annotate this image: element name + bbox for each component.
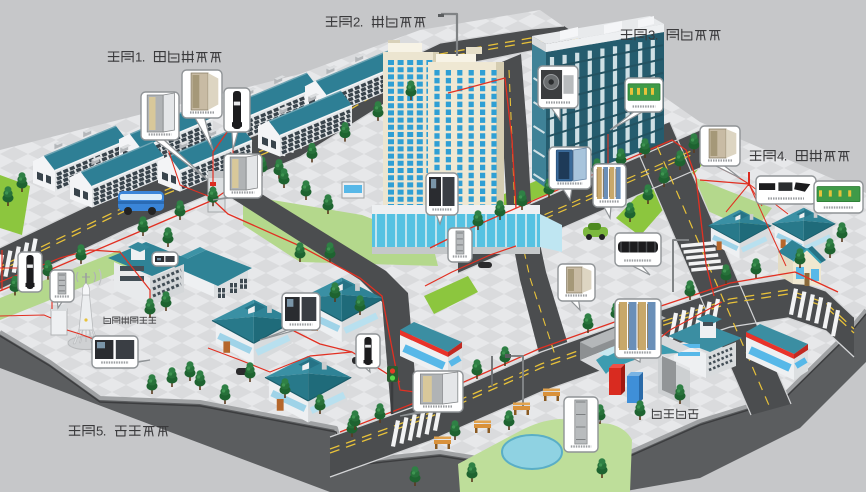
- svg-text:.: .: [103, 423, 107, 438]
- svg-text:.: .: [655, 27, 659, 42]
- svg-text:.: .: [360, 14, 364, 29]
- svg-text:.: .: [784, 148, 788, 163]
- svg-text:.: .: [142, 49, 146, 64]
